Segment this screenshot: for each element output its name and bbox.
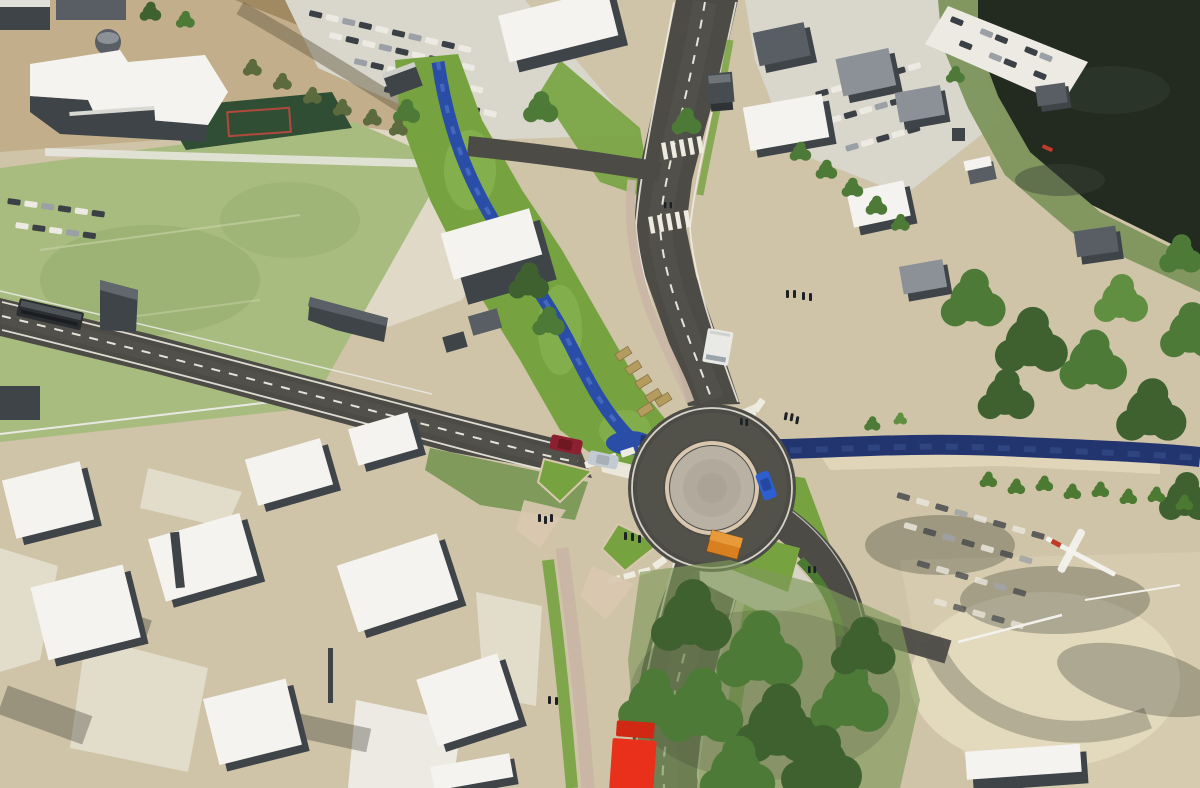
building <box>0 3 50 30</box>
building <box>0 386 40 420</box>
rendering-canvas <box>0 0 1200 788</box>
pole <box>328 648 333 703</box>
shore-hut <box>952 128 965 141</box>
scene <box>0 0 1200 788</box>
building <box>56 0 126 20</box>
school-building <box>30 50 228 142</box>
